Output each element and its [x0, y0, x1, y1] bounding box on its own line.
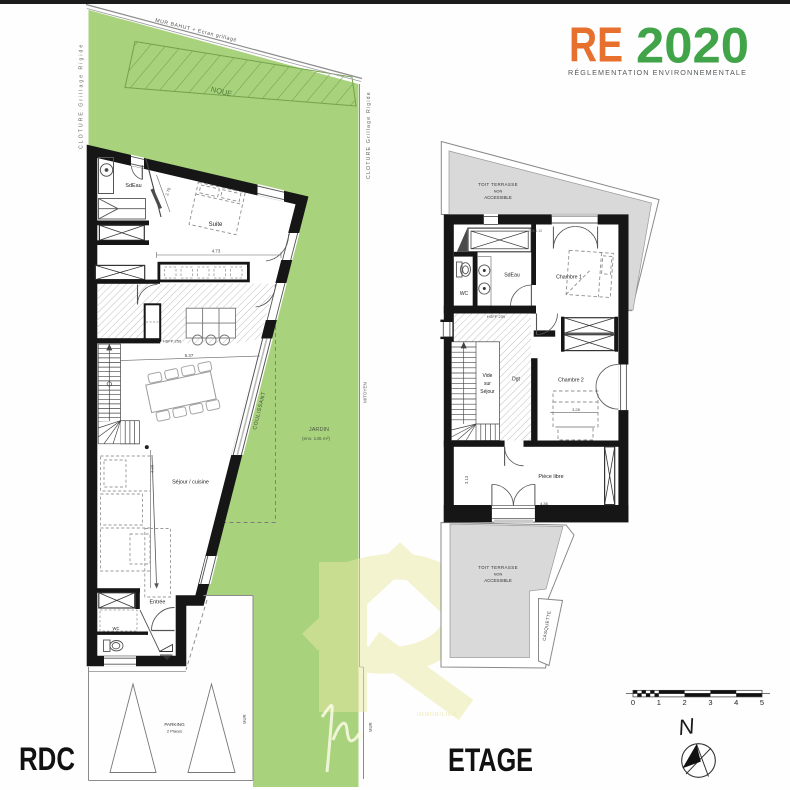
svg-text:4.73: 4.73 — [212, 249, 221, 254]
svg-text:3: 3 — [708, 698, 712, 707]
svg-text:Pièce libre: Pièce libre — [538, 474, 563, 480]
svg-text:TOIT TERRASSE: TOIT TERRASSE — [478, 565, 518, 570]
svg-text:ACCESSIBLE: ACCESSIBLE — [484, 195, 512, 200]
svg-text:NON: NON — [494, 573, 503, 577]
svg-text:0: 0 — [631, 698, 635, 707]
svg-text:CLOTURE Grillage Rigide: CLOTURE Grillage Rigide — [366, 91, 372, 179]
svg-text:TOIT TERRASSE: TOIT TERRASSE — [478, 182, 518, 187]
svg-text:SdEau: SdEau — [125, 183, 141, 189]
svg-text:Séjour / cuisine: Séjour / cuisine — [172, 480, 209, 486]
svg-text:Chambre 2: Chambre 2 — [558, 378, 584, 384]
svg-text:ACCESSIBLE: ACCESSIBLE — [484, 578, 512, 583]
svg-text:Entrée: Entrée — [150, 600, 166, 606]
svg-text:ETAGE: ETAGE — [448, 742, 533, 778]
svg-text:2.05 1.10: 2.05 1.10 — [528, 229, 542, 233]
svg-text:5.37: 5.37 — [185, 353, 194, 358]
svg-text:4: 4 — [734, 698, 738, 707]
svg-text:JARDIN: JARDIN — [309, 427, 329, 433]
svg-text:RDC: RDC — [19, 741, 75, 777]
svg-text:Séjour: Séjour — [480, 389, 495, 395]
svg-text:MUR: MUR — [368, 722, 373, 732]
svg-text:2020: 2020 — [636, 18, 749, 74]
svg-text:3.13: 3.13 — [464, 475, 469, 484]
svg-text:WC: WC — [460, 291, 469, 297]
svg-text:sur: sur — [484, 381, 491, 387]
svg-text:MUR: MUR — [242, 714, 247, 724]
svg-text:MITOYEN: MITOYEN — [363, 382, 368, 403]
svg-text:RE: RE — [569, 19, 623, 73]
svg-text:Chambre 1: Chambre 1 — [556, 275, 582, 281]
svg-text:4.36: 4.36 — [540, 501, 549, 506]
svg-text:2: 2 — [683, 698, 687, 707]
svg-text:Dgt: Dgt — [512, 377, 520, 383]
svg-text:CLOTURE Grillage Rigide: CLOTURE Grillage Rigide — [79, 43, 85, 149]
svg-text:PARKING: PARKING — [164, 722, 185, 727]
svg-text:1: 1 — [657, 698, 661, 707]
svg-text:NON: NON — [494, 190, 503, 194]
svg-text:HSFP 250: HSFP 250 — [163, 339, 182, 344]
svg-text:SdEau: SdEau — [504, 273, 520, 279]
svg-text:5: 5 — [760, 698, 764, 707]
svg-text:Vide: Vide — [483, 373, 493, 379]
svg-text:3.28: 3.28 — [572, 407, 581, 412]
svg-text:Suite: Suite — [209, 222, 223, 228]
svg-text:2 Places: 2 Places — [167, 729, 182, 734]
svg-text:WC: WC — [113, 626, 120, 631]
svg-text:RÉGLEMENTATION ENVIRONNEMENTAL: RÉGLEMENTATION ENVIRONNEMENTALE — [568, 68, 747, 77]
svg-text:(env. 145 m²): (env. 145 m²) — [302, 436, 331, 442]
svg-text:IMMOBILIER: IMMOBILIER — [417, 712, 457, 718]
